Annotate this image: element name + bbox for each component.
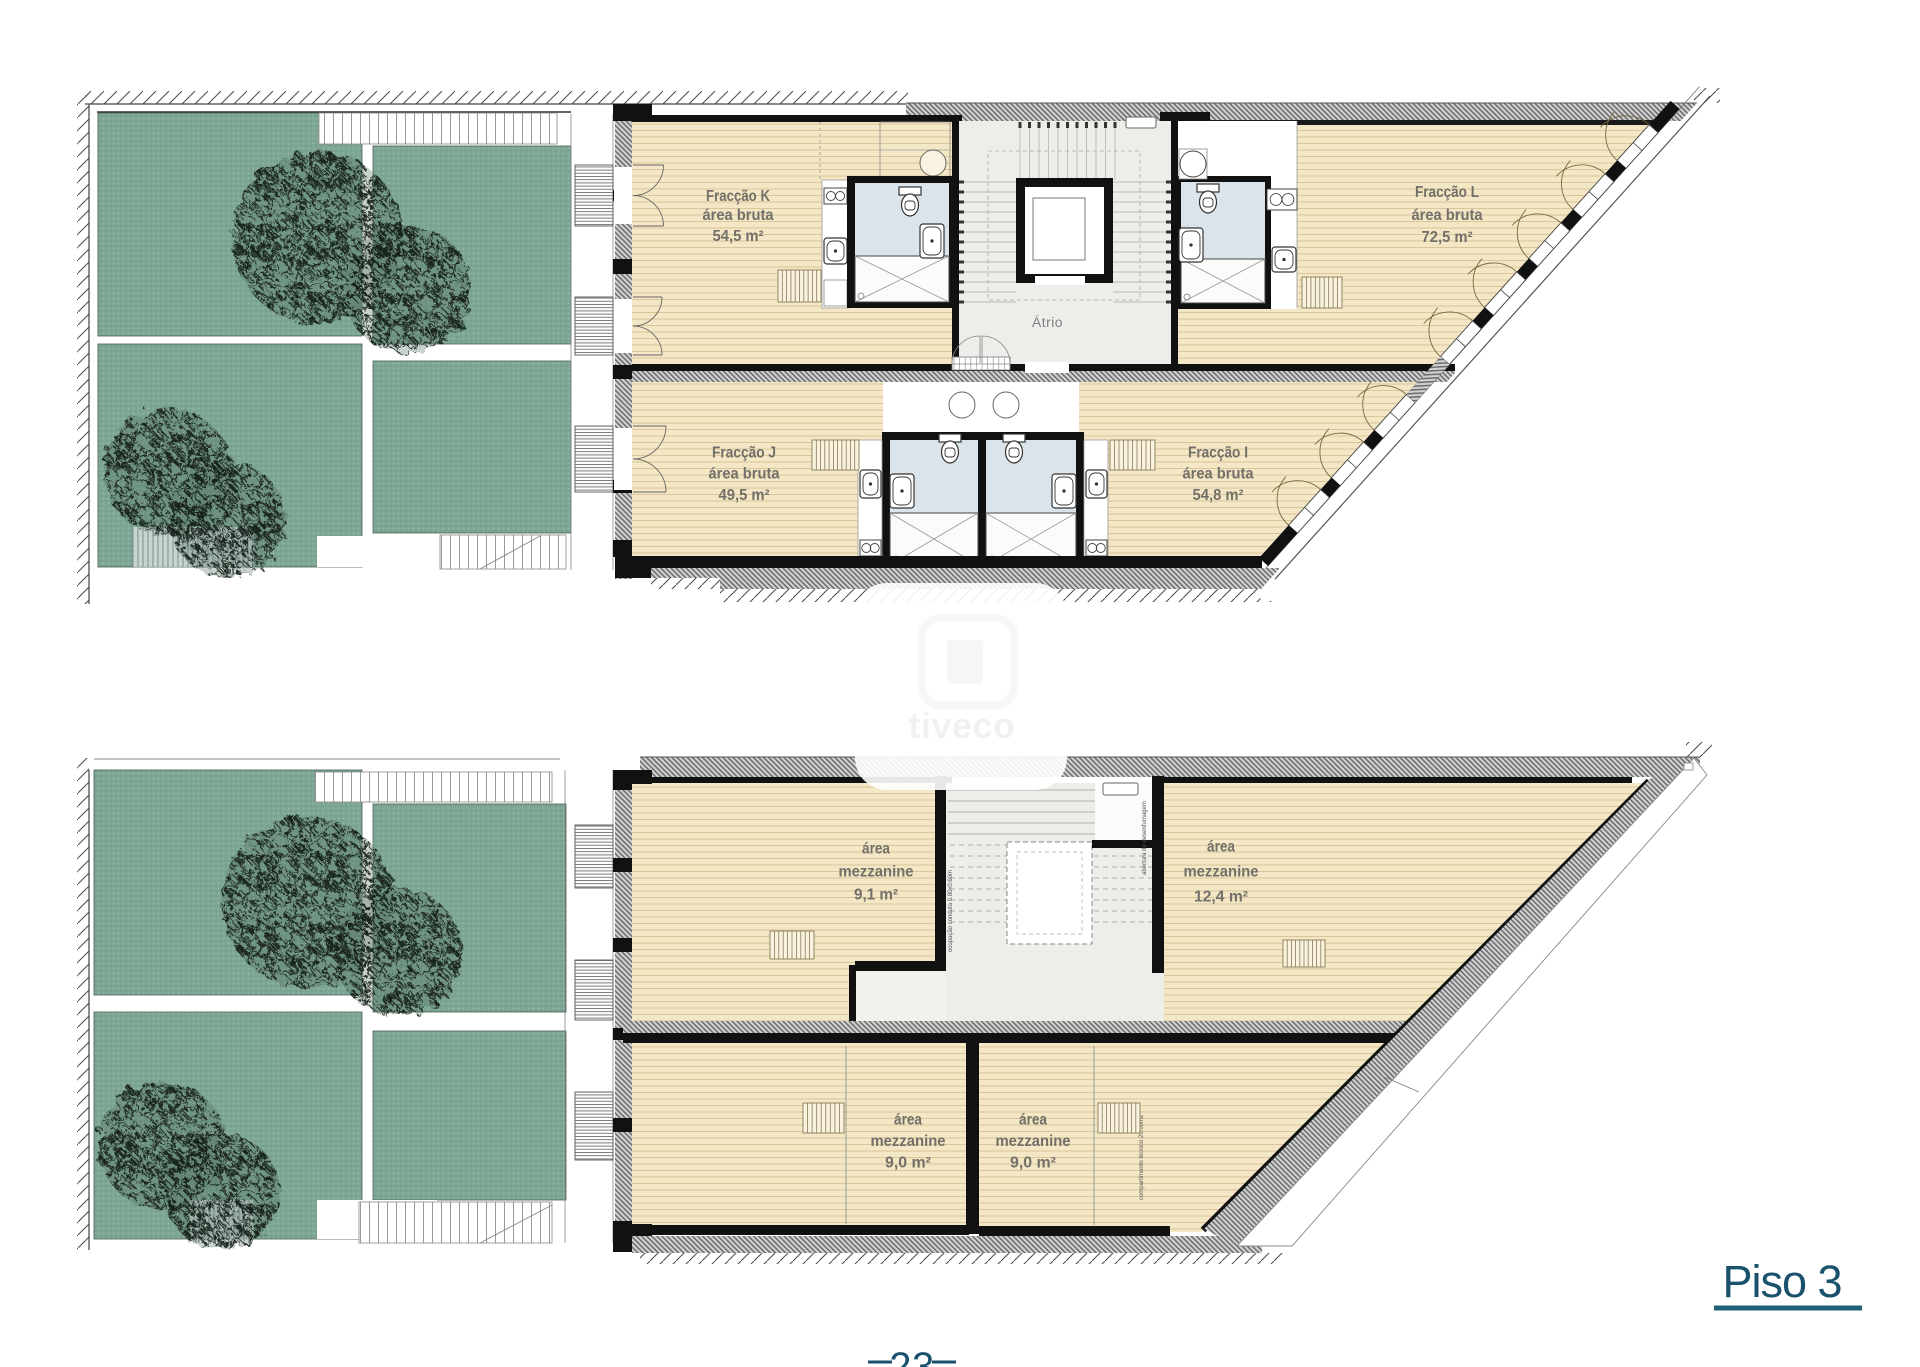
svg-text:área: área [1207, 839, 1235, 856]
svg-text:área bruta: área bruta [709, 466, 780, 483]
svg-text:Fracção K: Fracção K [706, 188, 771, 205]
svg-text:Fracção J: Fracção J [712, 445, 776, 462]
svg-text:área: área [1019, 1112, 1047, 1129]
svg-text:Piso 3: Piso 3 [1722, 1256, 1841, 1307]
svg-text:área bruta: área bruta [703, 207, 774, 224]
svg-text:12,4 m²: 12,4 m² [1194, 889, 1248, 906]
svg-text:mezzanine: mezzanine [1184, 864, 1259, 881]
svg-text:54,8 m²: 54,8 m² [1193, 487, 1244, 504]
svg-text:mezzanine: mezzanine [871, 1133, 946, 1150]
svg-text:mezzanine: mezzanine [839, 864, 914, 881]
svg-text:9,1 m²: 9,1 m² [854, 887, 898, 904]
svg-text:9,0 m²: 9,0 m² [885, 1155, 931, 1172]
svg-text:Fracção L: Fracção L [1415, 184, 1479, 201]
svg-text:área: área [894, 1112, 922, 1129]
svg-text:72,5 m²: 72,5 m² [1422, 229, 1473, 246]
svg-text:abertura de desenfumagem: abertura de desenfumagem [1142, 801, 1148, 875]
svg-text:mezzanine: mezzanine [996, 1133, 1071, 1150]
svg-text:área bruta: área bruta [1412, 207, 1483, 224]
svg-text:54,5 m²: 54,5 m² [713, 228, 764, 245]
svg-text:23: 23 [889, 1345, 935, 1367]
svg-text:49,5 m²: 49,5 m² [719, 487, 770, 504]
svg-text:tiveco: tiveco [908, 705, 1015, 746]
svg-text:ocupação conduta 0.80x0.60m: ocupação conduta 0.80x0.60m [948, 870, 954, 952]
svg-text:área bruta: área bruta [1183, 466, 1254, 483]
svg-text:Átrio: Átrio [1032, 315, 1063, 330]
svg-text:Fracção I: Fracção I [1188, 445, 1248, 462]
svg-text:área: área [862, 841, 890, 858]
svg-text:9,0 m²: 9,0 m² [1010, 1155, 1056, 1172]
